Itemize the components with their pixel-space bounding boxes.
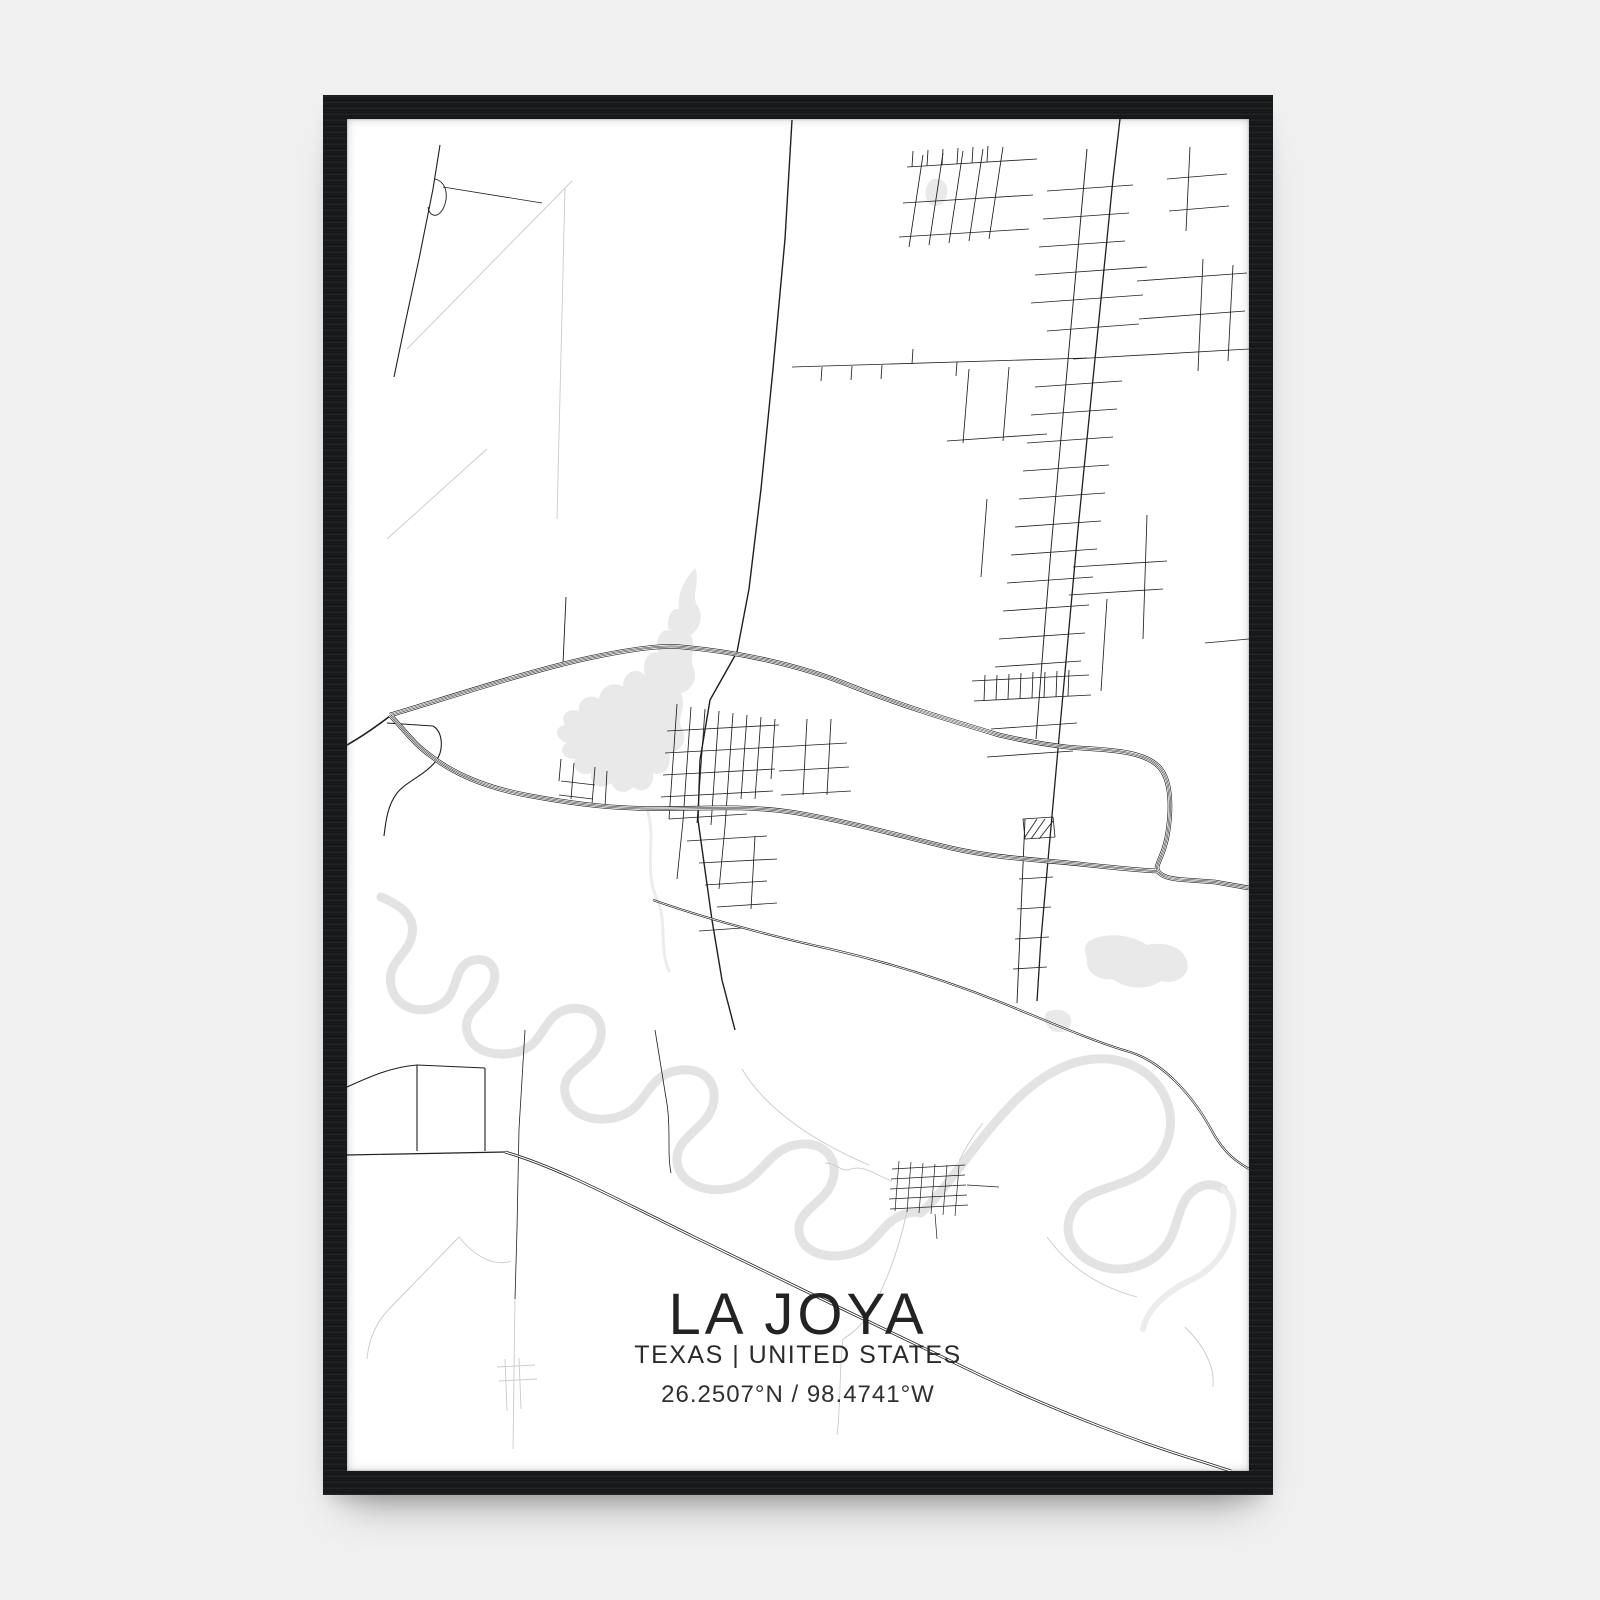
picture-frame: LA JOYA TEXAS | UNITED STATES 26.2507°N …: [323, 95, 1273, 1495]
street-map: [347, 119, 1249, 1471]
poster-title: LA JOYA: [347, 1281, 1249, 1348]
settlement-grid: [889, 1161, 999, 1239]
rio-grande-river: [381, 809, 1234, 1329]
poster-subtitle: TEXAS | UNITED STATES: [347, 1341, 1249, 1370]
poster-coordinates: 26.2507°N / 98.4741°W: [347, 1381, 1249, 1409]
map-poster: LA JOYA TEXAS | UNITED STATES 26.2507°N …: [347, 119, 1249, 1471]
la-joya-lake: [557, 568, 701, 792]
north-ladder-grid: [792, 119, 1249, 1003]
road-layer: [347, 119, 1249, 1299]
old-highway-road: [653, 900, 1249, 1169]
wetland: [1085, 935, 1188, 987]
water-layer: [557, 179, 1188, 1033]
expressway-83: [347, 646, 1249, 888]
